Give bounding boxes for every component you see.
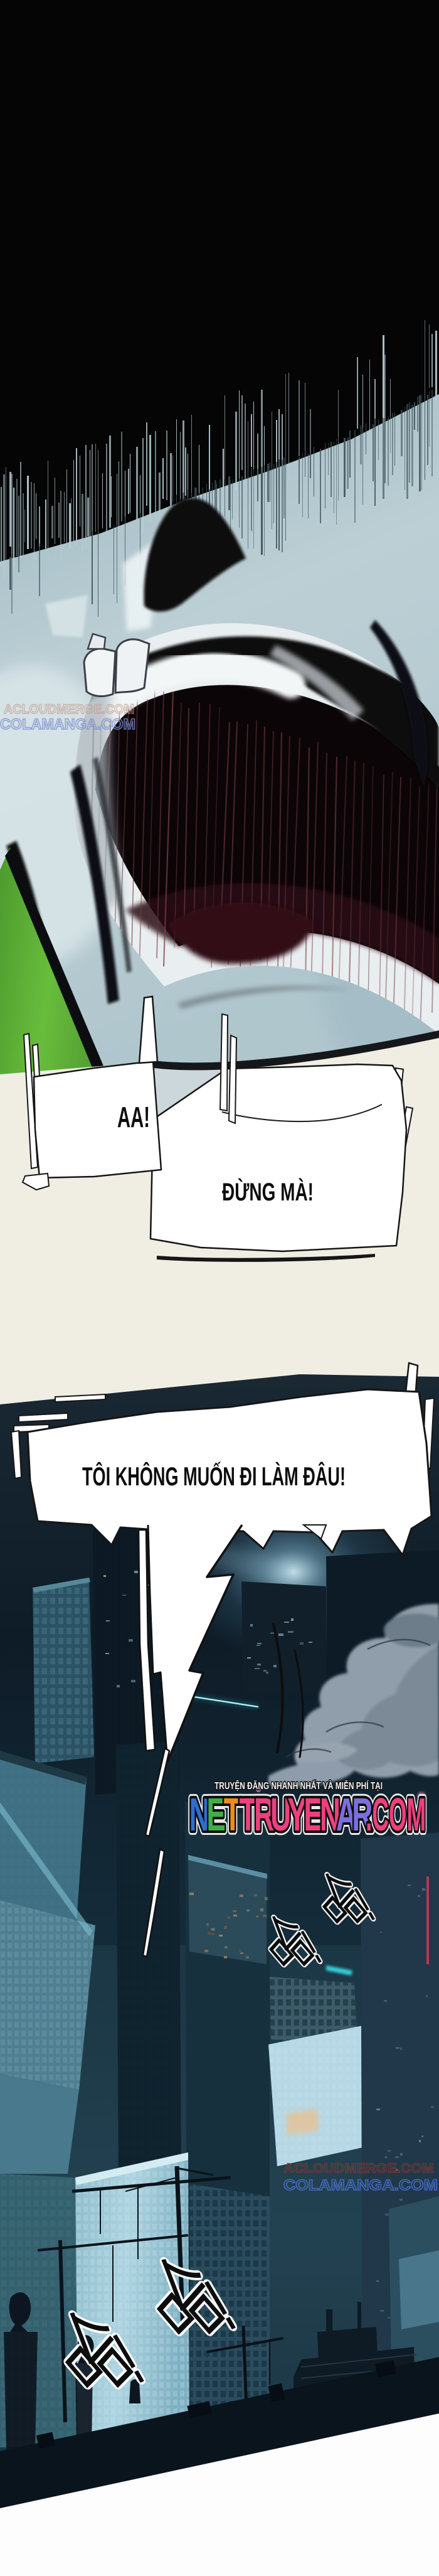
svg-text:AA!: AA! [117,1101,150,1133]
svg-text:ACLOUDMERGE.COM: ACLOUDMERGE.COM [283,2161,434,2176]
svg-text:COLAMANGA.COM: COLAMANGA.COM [0,716,135,733]
svg-text:ĐỪNG MÀ!: ĐỪNG MÀ! [222,1177,314,1206]
svg-text:E: E [206,1789,226,1841]
svg-text:T: T [224,1789,241,1841]
svg-text:.COM: .COM [366,1789,426,1841]
svg-text:COLAMANGA.COM: COLAMANGA.COM [283,2177,438,2194]
svg-text:TÔI KHÔNG MUỐN ĐI LÀM ĐÂU!: TÔI KHÔNG MUỐN ĐI LÀM ĐÂU! [82,1461,346,1491]
svg-text:ACLOUDMERGE.COM: ACLOUDMERGE.COM [4,702,134,717]
